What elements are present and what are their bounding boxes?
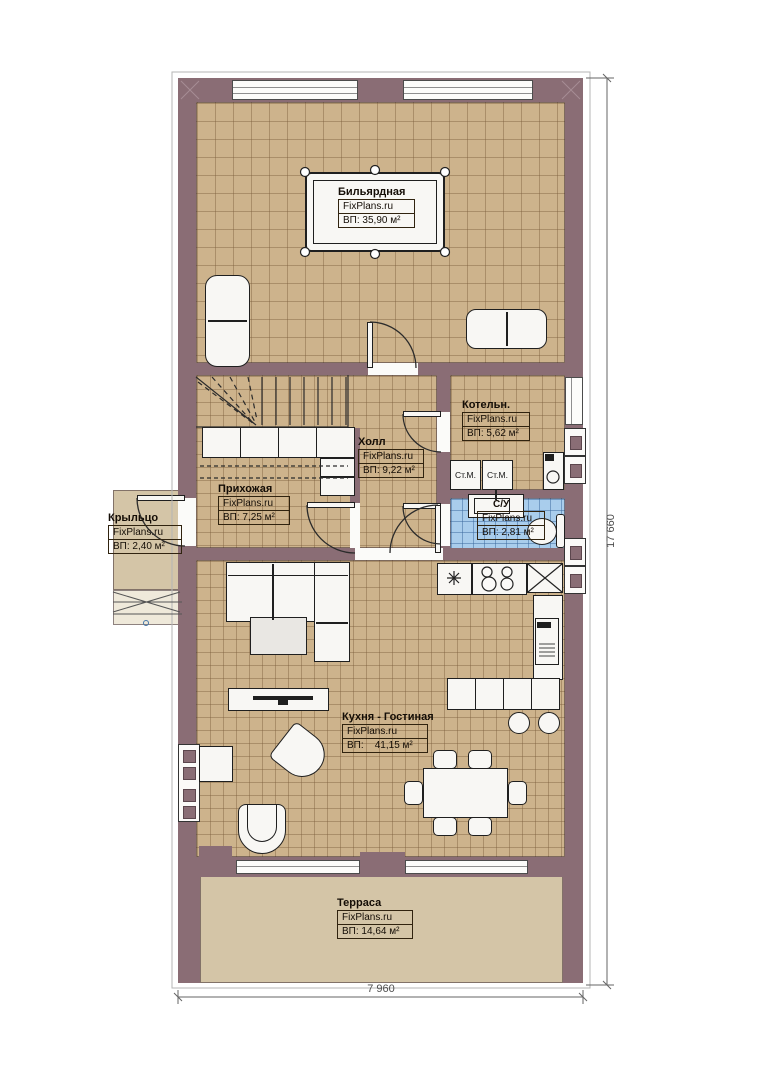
area-box: ВП: 2,40 м² [108,539,182,554]
room-name: Крыльцо [108,512,182,524]
area-box: ВП: 9,22 м² [358,463,424,478]
area-box: ВП: 41,15 м² [342,738,428,753]
boiler-icon [547,471,559,483]
room-name: Бильярдная [338,186,415,198]
room-label-boiler: Котельн. FixPlans.ru ВП: 5,62 м² [462,399,530,441]
area-box: ВП: 7,25 м² [218,510,290,525]
room-name: Прихожая [218,483,290,495]
room-label-porch: Крыльцо FixPlans.ru ВП: 2,40 м² [108,512,182,554]
corner-cabinet-x-icon [528,564,562,592]
area-box: ВП: 5,62 м² [462,426,530,441]
room-name: Котельн. [462,399,530,411]
corner-cross-icon [181,81,580,99]
dimension-height-label: 17 660 [605,500,617,562]
area-box: ВП: 35,90 м² [338,213,415,228]
dimension-width-label: 7 960 [350,983,412,995]
room-label-terrace: Терраса FixPlans.ru ВП: 14,64 м² [337,897,413,939]
room-name: Кухня - Гостиная [342,711,428,723]
fridge-vent-icon [539,644,555,656]
sink-icon [447,571,461,585]
room-label-hall: Холл FixPlans.ru ВП: 9,22 м² [358,436,424,478]
room-name: Терраса [337,897,413,909]
area-box: ВП: 2,81 м² [477,525,545,540]
room-label-hallway: Прихожая FixPlans.ru ВП: 7,25 м² [218,483,290,525]
room-label-kitchen-living: Кухня - Гостиная FixPlans.ru ВП: 41,15 м… [342,711,428,753]
staircase [196,375,348,478]
room-name: Холл [358,436,424,448]
floor-plan: Ст.М. Ст.М. [0,0,763,1080]
room-name: С/У [493,499,545,510]
stove-burners-icon [482,567,513,591]
room-label-billiard: Бильярдная FixPlans.ru ВП: 35,90 м² [338,186,415,228]
area-box: ВП: 14,64 м² [337,924,413,939]
room-label-wc: С/У FixPlans.ru ВП: 2,81 м² [477,499,545,540]
